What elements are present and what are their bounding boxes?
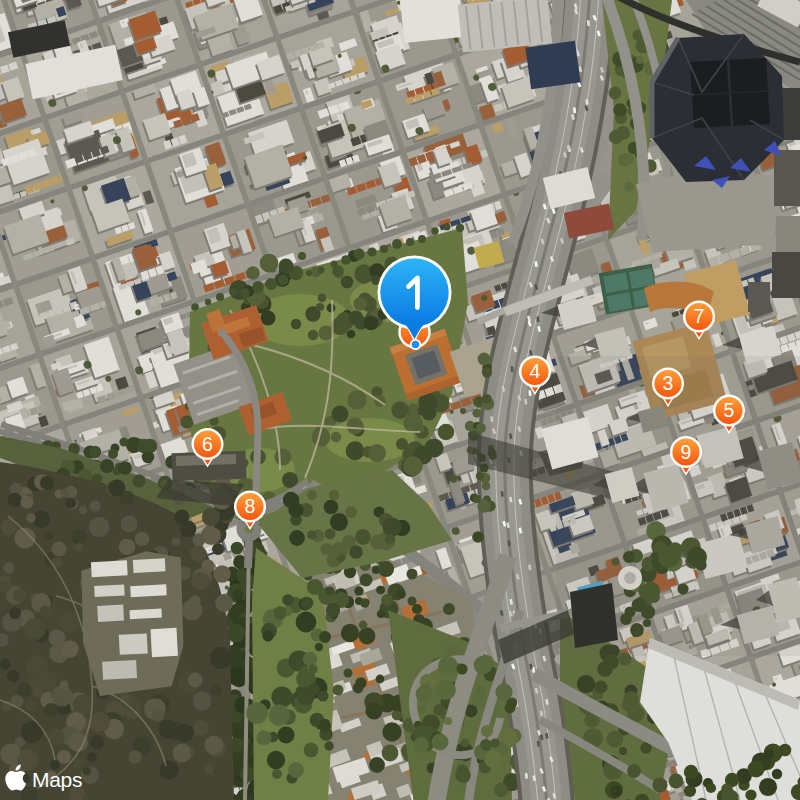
- svg-text:4: 4: [530, 360, 541, 382]
- svg-text:7: 7: [694, 305, 705, 327]
- svg-text:8: 8: [245, 495, 256, 517]
- svg-text:6: 6: [202, 433, 213, 455]
- svg-text:Maps: Maps: [32, 768, 82, 791]
- svg-text:9: 9: [681, 441, 692, 463]
- svg-text:5: 5: [724, 399, 735, 421]
- svg-text:3: 3: [663, 372, 674, 394]
